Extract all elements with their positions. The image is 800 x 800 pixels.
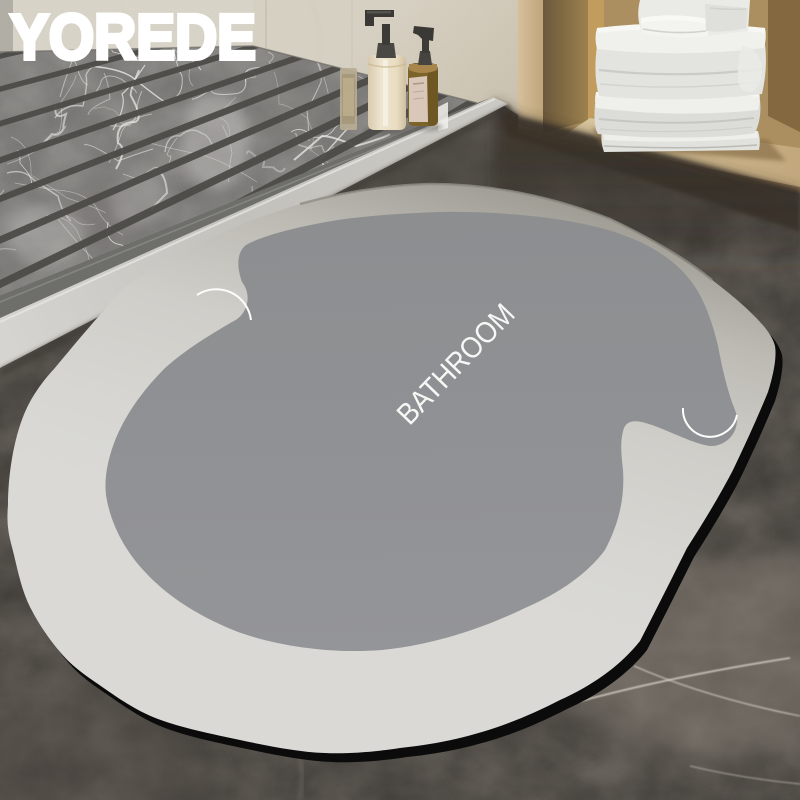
svg-text:YOREDE: YOREDE: [10, 1, 256, 73]
